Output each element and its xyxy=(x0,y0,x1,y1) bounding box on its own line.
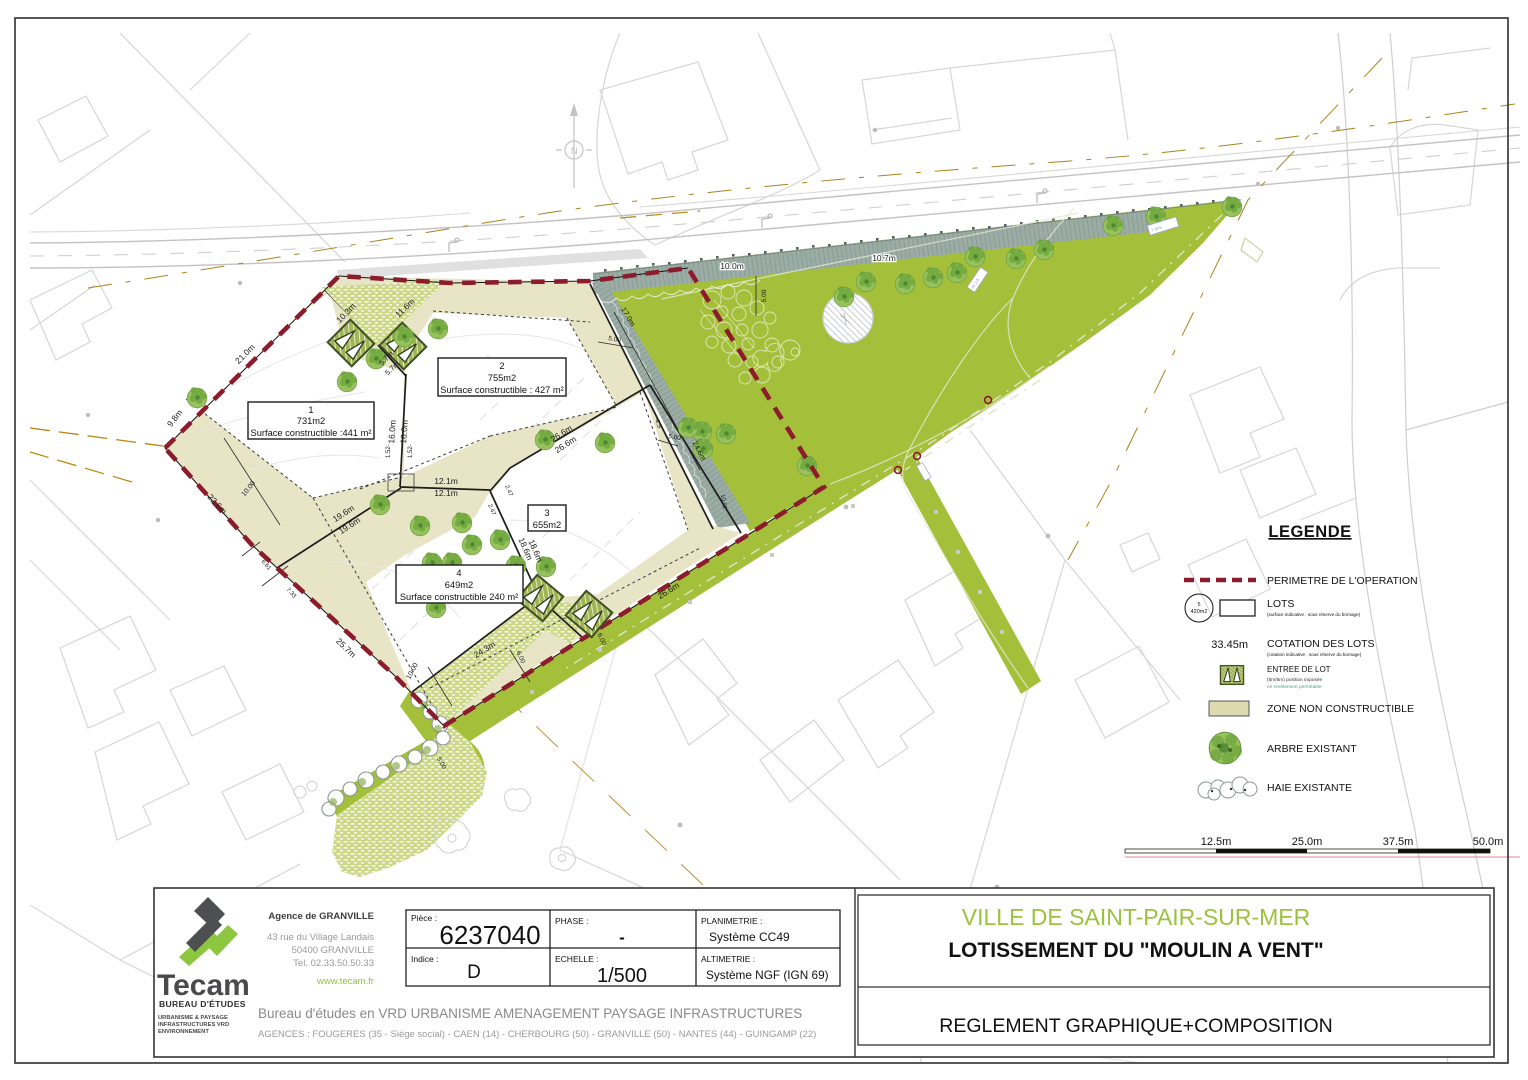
svg-text:755m2: 755m2 xyxy=(488,373,516,383)
svg-text:33.45m: 33.45m xyxy=(1211,639,1248,651)
svg-text:43 rue du Village Landais: 43 rue du Village Landais xyxy=(267,932,374,943)
svg-text:Tecam: Tecam xyxy=(157,969,250,1002)
svg-text:Agence de GRANVILLE: Agence de GRANVILLE xyxy=(268,911,374,922)
svg-text:3: 3 xyxy=(544,508,549,518)
svg-text:Bureau d'études en VRD URBANI: Bureau d'études en VRD URBANISME AMENAGE… xyxy=(258,1006,802,1021)
svg-text:37.5m: 37.5m xyxy=(1383,836,1414,848)
svg-text:PHASE :: PHASE : xyxy=(555,916,589,926)
svg-text:16.0m: 16.0m xyxy=(386,420,398,444)
svg-text:ARBRE EXISTANT: ARBRE EXISTANT xyxy=(1267,743,1357,755)
svg-text:-: - xyxy=(619,928,625,947)
svg-text:(cotation indicative , sous ré: (cotation indicative , sous réserve du b… xyxy=(1267,652,1362,657)
svg-text:PLANIMETRIE :: PLANIMETRIE : xyxy=(701,916,762,926)
svg-text:BUREAU D'ÉTUDES: BUREAU D'ÉTUDES xyxy=(159,999,246,1009)
svg-text:649m2: 649m2 xyxy=(445,580,473,590)
svg-text:LOTS: LOTS xyxy=(1267,598,1294,610)
svg-text:10.0m: 10.0m xyxy=(720,261,744,271)
svg-text:Système CC49: Système CC49 xyxy=(709,930,790,944)
svg-text:N: N xyxy=(571,146,578,156)
svg-text:1/500: 1/500 xyxy=(597,965,647,987)
svg-text:D: D xyxy=(467,962,481,983)
svg-text:2: 2 xyxy=(499,361,504,371)
svg-text:Tel. 02.33.50.50.33: Tel. 02.33.50.50.33 xyxy=(293,958,374,969)
svg-text:5: 5 xyxy=(1197,602,1200,608)
svg-text:1.52-: 1.52- xyxy=(386,444,392,458)
svg-text:COTATION DES LOTS: COTATION DES LOTS xyxy=(1267,638,1375,650)
svg-text:www.tecam.fr: www.tecam.fr xyxy=(316,976,374,987)
svg-text:ZONE NON CONSTRUCTIBLE: ZONE NON CONSTRUCTIBLE xyxy=(1267,703,1414,715)
svg-text:1.52-: 1.52- xyxy=(408,444,414,458)
svg-text:5.00: 5.00 xyxy=(761,289,768,302)
svg-text:REGLEMENT GRAPHIQUE+COMPOSITIO: REGLEMENT GRAPHIQUE+COMPOSITION xyxy=(939,1015,1333,1037)
svg-text:12.1m: 12.1m xyxy=(434,476,458,486)
svg-text:ECHELLE :: ECHELLE : xyxy=(555,954,598,964)
svg-text:ENVIRONNEMENT: ENVIRONNEMENT xyxy=(158,1029,209,1035)
svg-text:Pièce :: Pièce : xyxy=(411,913,437,923)
svg-text:Indice :: Indice : xyxy=(411,954,438,964)
svg-text:(surface indicative , sous rés: (surface indicative , sous réserve du bo… xyxy=(1267,612,1361,617)
svg-text:Système NGF (IGN 69): Système NGF (IGN 69) xyxy=(706,968,829,982)
svg-text:LOTISSEMENT DU "MOULIN A VENT": LOTISSEMENT DU "MOULIN A VENT" xyxy=(948,939,1323,962)
svg-text:LEGENDE: LEGENDE xyxy=(1268,523,1351,541)
svg-text:PERIMETRE DE L'OPERATION: PERIMETRE DE L'OPERATION xyxy=(1267,575,1418,587)
svg-text:ENTREE DE LOT: ENTREE DE LOT xyxy=(1267,665,1331,674)
svg-text:Surface constructible : 427 m²: Surface constructible : 427 m² xyxy=(440,385,564,395)
svg-text:50400 GRANVILLE: 50400 GRANVILLE xyxy=(292,945,374,956)
svg-text:URBANISME & PAYSAGE: URBANISME & PAYSAGE xyxy=(158,1015,228,1021)
svg-text:(5m/6m) position imposée: (5m/6m) position imposée xyxy=(1267,677,1323,683)
svg-text:HAIE EXISTANTE: HAIE EXISTANTE xyxy=(1267,782,1352,794)
svg-text:12.1m: 12.1m xyxy=(434,488,458,498)
svg-text:655m2: 655m2 xyxy=(533,520,561,530)
svg-text:10.7m: 10.7m xyxy=(872,253,896,263)
svg-text:VILLE DE SAINT-PAIR-SUR-MER: VILLE DE SAINT-PAIR-SUR-MER xyxy=(962,904,1310,930)
svg-text:12.5m: 12.5m xyxy=(1201,836,1232,848)
svg-text:AGENCES : FOUGERES (35 - Sièg: AGENCES : FOUGERES (35 - Siège social) -… xyxy=(258,1029,816,1040)
svg-text:4: 4 xyxy=(456,568,461,578)
svg-text:Surface constructible 240 m²: Surface constructible 240 m² xyxy=(400,592,518,602)
svg-text:1: 1 xyxy=(308,405,313,415)
svg-text:INFRASTRUCTURES VRD: INFRASTRUCTURES VRD xyxy=(158,1022,229,1028)
svg-text:731m2: 731m2 xyxy=(297,416,325,426)
svg-text:en revêtement perméable: en revêtement perméable xyxy=(1267,684,1322,690)
svg-text:6237040: 6237040 xyxy=(439,920,540,950)
svg-text:Surface constructible :441 m²: Surface constructible :441 m² xyxy=(251,428,372,438)
svg-text:50.0m: 50.0m xyxy=(1473,836,1504,848)
svg-text:16.0m: 16.0m xyxy=(398,420,410,444)
svg-text:ALTIMETRIE :: ALTIMETRIE : xyxy=(701,954,755,964)
svg-text:25.0m: 25.0m xyxy=(1292,836,1323,848)
svg-text:420m2: 420m2 xyxy=(1191,609,1208,615)
